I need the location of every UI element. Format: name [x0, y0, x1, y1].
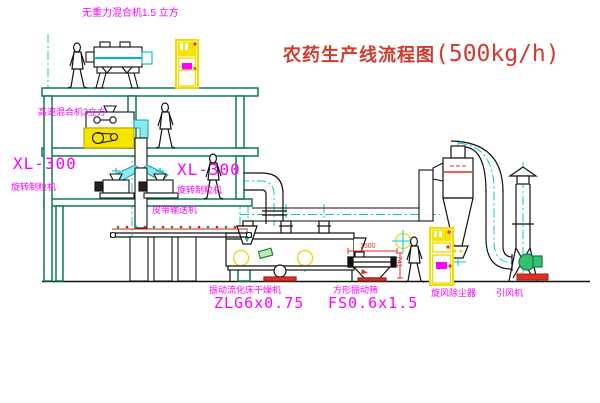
exhaust-duct	[252, 163, 443, 221]
person-floor2	[156, 103, 175, 148]
label-dryer-model: ZLG6x0.75	[214, 296, 304, 311]
person-roof	[68, 43, 87, 88]
person-ground	[405, 237, 424, 282]
label-granulator-left-model: XL-300	[13, 156, 77, 172]
label-granulator-right-model: XL-300	[177, 162, 241, 178]
gravity-mixer	[86, 42, 152, 88]
diagram-title: 农药生产线流程图(500kg/h)	[283, 43, 560, 66]
process-flow-diagram: 农药生产线流程图(500kg/h) 无重力混合机1.5 立方 高速混合机3立方 …	[0, 0, 600, 403]
label-fan: 引风机	[496, 289, 523, 298]
title-capacity: (500kg/h)	[435, 41, 560, 67]
label-high-speed-mixer: 高速混合机3立方	[38, 108, 106, 117]
label-granulator-left-name: 旋转制粒机	[11, 183, 56, 192]
dim-screen-length: 1500	[360, 243, 376, 250]
label-granulator-right-name: 旋转制粒机	[177, 186, 222, 195]
label-cyclone: 旋风除尘器	[431, 289, 476, 298]
title-chinese: 农药生产线流程图	[283, 45, 435, 65]
control-cabinet-bottom	[430, 228, 453, 285]
dim-screen-height: 741	[395, 256, 402, 268]
label-belt-conveyor: 皮带输送机	[152, 206, 197, 215]
control-cabinet-top	[176, 40, 198, 88]
label-gravity-mixer: 无重力混合机1.5 立方	[82, 9, 179, 19]
draft-fan	[517, 254, 548, 280]
label-screen-model: FS0.6x1.5	[328, 296, 418, 311]
